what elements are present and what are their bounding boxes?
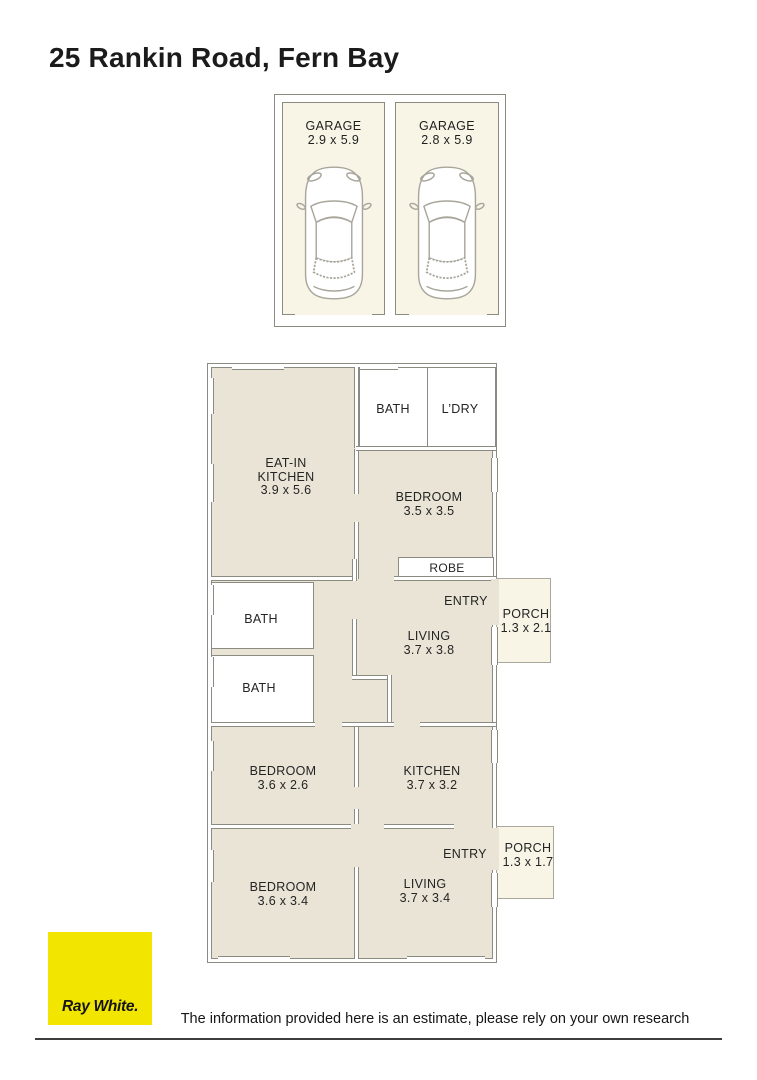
room-label-kitchen: KITCHEN 3.7 x 3.2 xyxy=(372,765,492,792)
page-title: 25 Rankin Road, Fern Bay xyxy=(49,42,399,74)
room-name: BATH xyxy=(363,403,423,417)
room-name: BEDROOM xyxy=(223,765,343,779)
window xyxy=(232,363,284,370)
room-name: LIVING xyxy=(369,630,489,644)
wall-segment xyxy=(420,722,496,727)
room-name: BEDROOM xyxy=(223,881,343,895)
room-label-laundry: L’DRY xyxy=(430,403,490,417)
room-dims: 3.7 x 3.8 xyxy=(369,644,489,658)
wall-segment xyxy=(211,576,354,581)
room-name: L’DRY xyxy=(430,403,490,417)
window xyxy=(491,873,498,907)
garage-bay: GARAGE 2.9 x 5.9 xyxy=(282,102,385,315)
wall-segment xyxy=(384,824,454,829)
room-label-bedroom-3: BEDROOM 3.6 x 3.4 xyxy=(223,881,343,908)
room-name: KITCHEN xyxy=(372,765,492,779)
room-name: PORCH xyxy=(488,842,568,856)
wall-segment xyxy=(211,824,351,829)
room-label-bedroom-1: BEDROOM 3.5 x 3.5 xyxy=(369,491,489,518)
wall-segment xyxy=(354,809,359,824)
room-label-porch-upper: PORCH 1.3 x 2.1 xyxy=(486,608,566,635)
room-name: BATH xyxy=(231,613,291,627)
window xyxy=(360,363,398,370)
car-top-view-icon xyxy=(294,159,374,307)
window xyxy=(207,464,214,502)
window xyxy=(407,956,485,963)
wall-segment xyxy=(354,867,359,959)
room-dims: 3.6 x 2.6 xyxy=(223,779,343,793)
window xyxy=(491,458,498,492)
window xyxy=(207,378,214,414)
room-label-living-2: LIVING 3.7 x 3.4 xyxy=(365,878,485,905)
room-label-robe: ROBE xyxy=(407,562,487,576)
ray-white-logo: Ray White. xyxy=(48,932,152,1025)
room-label-bedroom-2: BEDROOM 3.6 x 2.6 xyxy=(223,765,343,792)
wall-segment xyxy=(211,722,315,727)
room-dims: 3.9 x 5.6 xyxy=(246,484,326,498)
room-dims: 3.7 x 3.2 xyxy=(372,779,492,793)
room-label-living-1: LIVING 3.7 x 3.8 xyxy=(369,630,489,657)
wall-segment xyxy=(387,675,392,727)
room-dims: 3.5 x 3.5 xyxy=(369,505,489,519)
window xyxy=(207,585,214,615)
wall-segment xyxy=(352,675,392,680)
room-name: GARAGE xyxy=(396,119,498,133)
room-dims: 2.9 x 5.9 xyxy=(283,133,384,147)
window xyxy=(207,657,214,687)
room-name: GARAGE xyxy=(283,119,384,133)
room-name: ENTRY xyxy=(426,595,506,609)
wall-segment xyxy=(352,559,357,581)
room-dims: 3.7 x 3.4 xyxy=(365,892,485,906)
garage-label: GARAGE 2.9 x 5.9 xyxy=(283,119,384,147)
logo-wordmark: Ray White. xyxy=(62,998,138,1016)
wall-segment xyxy=(354,367,359,448)
car-top-view-icon xyxy=(407,159,487,307)
room-name: EAT-IN KITCHEN xyxy=(246,457,326,484)
room-label-porch-lower: PORCH 1.3 x 1.7 xyxy=(488,842,568,869)
wall-segment xyxy=(342,722,394,727)
window xyxy=(207,850,214,882)
room-dims: 3.6 x 3.4 xyxy=(223,895,343,909)
room-label-entry-upper: ENTRY xyxy=(426,595,506,609)
disclaimer-text: The information provided here is an esti… xyxy=(160,1011,710,1027)
room-dims: 2.8 x 5.9 xyxy=(396,133,498,147)
room-label-bath-mid: BATH xyxy=(231,613,291,627)
wall-segment xyxy=(352,619,357,679)
room-name: BEDROOM xyxy=(369,491,489,505)
room-dims: 1.3 x 2.1 xyxy=(486,622,566,636)
wall-segment xyxy=(394,576,496,581)
window xyxy=(207,741,214,771)
room-label-bath-low: BATH xyxy=(229,682,289,696)
room-name: PORCH xyxy=(486,608,566,622)
garage-bay: GARAGE 2.8 x 5.9 xyxy=(395,102,499,315)
room-dims: 1.3 x 1.7 xyxy=(488,856,568,870)
wall-segment xyxy=(354,727,359,787)
garage-label: GARAGE 2.8 x 5.9 xyxy=(396,119,498,147)
room-name: BATH xyxy=(229,682,289,696)
room-name: ROBE xyxy=(407,562,487,576)
wall-segment xyxy=(356,446,496,451)
room-label-bath-top: BATH xyxy=(363,403,423,417)
footer-divider xyxy=(35,1038,722,1040)
garage: GARAGE 2.9 x 5.9 GARAGE 2.8 x 5.9 xyxy=(274,94,506,327)
floorplan: EAT-IN KITCHEN 3.9 x 5.6 BATH L’DRY BEDR… xyxy=(207,363,497,963)
window xyxy=(491,730,498,763)
window xyxy=(218,956,290,963)
room-label-eat-in-kitchen: EAT-IN KITCHEN 3.9 x 5.6 xyxy=(246,457,326,498)
garage-door-opening xyxy=(295,312,372,315)
garage-door-opening xyxy=(409,312,487,315)
room-name: LIVING xyxy=(365,878,485,892)
wall-segment xyxy=(354,449,359,494)
